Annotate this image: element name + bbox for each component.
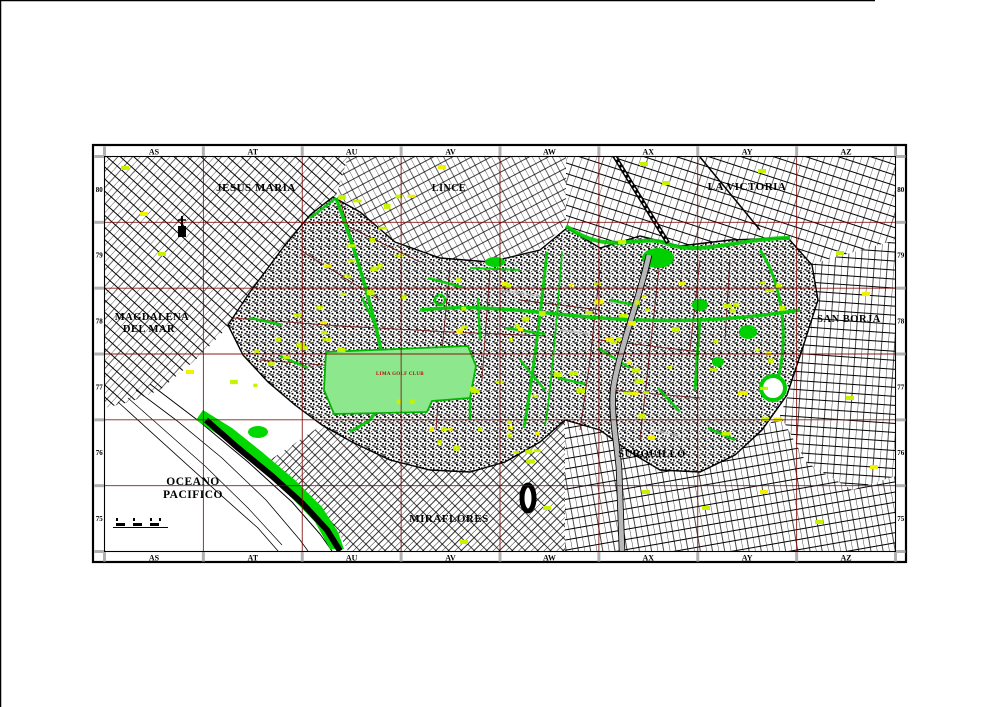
grid-row-label-right: 79 (897, 252, 905, 260)
grid-row-label-right: 76 (897, 449, 905, 457)
park-patch (453, 446, 460, 451)
park-patch (635, 379, 642, 384)
grid-row-label-left: 75 (96, 515, 104, 523)
park-patch (776, 284, 782, 289)
park-patch (616, 337, 621, 341)
park-patch (554, 372, 562, 377)
park-patch (457, 329, 463, 334)
park-patch (268, 362, 275, 365)
grid-column-label-bottom: AW (543, 554, 556, 563)
park-patch (668, 366, 672, 369)
park-patch (534, 449, 541, 452)
park-patch (525, 450, 532, 454)
district-label-oceano-line2: PACIFICO (163, 489, 223, 501)
park-patch (456, 278, 461, 282)
park-patch (710, 368, 717, 371)
grid-column-label-top: AW (543, 148, 556, 157)
park-patch (522, 317, 529, 322)
park-patch (509, 338, 513, 341)
park-patch (643, 391, 649, 394)
grid-row-label-right: 77 (897, 383, 905, 391)
park-patch (283, 356, 290, 359)
park-patch (324, 264, 332, 267)
stadium-mark (522, 485, 534, 511)
park-patch (730, 309, 736, 313)
park-patch (518, 327, 523, 331)
park-patch (768, 358, 773, 363)
park-patch (543, 506, 551, 510)
park-patch (158, 252, 166, 256)
park-patch (623, 392, 630, 395)
grid-column-label-top: AU (346, 148, 358, 157)
park-patch (535, 431, 540, 435)
park-patch (370, 267, 377, 272)
park-patch (186, 370, 194, 374)
park-patch (407, 195, 415, 198)
park-patch (679, 282, 686, 285)
park-patch (628, 321, 635, 326)
park-patch (733, 303, 738, 307)
park-patch (526, 459, 535, 463)
park-patch (230, 380, 238, 384)
park-patch (347, 244, 356, 247)
park-patch (378, 264, 383, 269)
park-patch (606, 337, 614, 342)
park-patch (396, 254, 403, 257)
park-patch (294, 313, 302, 316)
park-patch (353, 200, 362, 203)
grid-row-label-left: 77 (96, 383, 104, 391)
grid-row-label-left: 78 (96, 318, 104, 326)
park-patch (723, 304, 732, 308)
grid-row-label-left: 76 (96, 449, 104, 457)
park-patch (645, 308, 650, 312)
grid-column-label-bottom: AT (248, 554, 259, 563)
grid-row-label-right: 75 (897, 515, 905, 523)
park-patch (738, 392, 747, 395)
park-patch (323, 338, 332, 341)
park-patch (438, 165, 446, 169)
district-label-surquillo: SURQUILLO (618, 449, 686, 460)
park-patch (815, 520, 823, 524)
park-patch (760, 387, 768, 390)
park-patch (338, 195, 345, 200)
grid-column-label-top: AS (149, 148, 160, 157)
grid-column-label-bottom: AU (346, 554, 358, 563)
park-patch (846, 396, 854, 400)
grid-row-label-right: 80 (897, 186, 905, 194)
park-patch (121, 166, 129, 170)
park-patch (370, 238, 375, 242)
district-label-magdalena-line1: MAGDALENA (115, 312, 190, 323)
park-patch (619, 314, 628, 318)
park-patch (870, 465, 878, 469)
park-patch (508, 426, 513, 429)
park-patch (638, 414, 645, 419)
park-patch (765, 289, 774, 292)
grid-column-label-bottom: AV (445, 554, 456, 563)
grid-row-label-left: 79 (96, 252, 104, 260)
park-patch (569, 371, 578, 375)
park-patch (378, 227, 387, 230)
park-patch (635, 300, 640, 304)
grid-column-label-top: AT (248, 148, 259, 157)
park-patch (862, 292, 870, 296)
grid-column-label-bottom: AZ (841, 554, 852, 563)
park-patch (367, 290, 375, 295)
park-patch (448, 428, 452, 431)
park-patch (640, 162, 648, 166)
park-patch (253, 384, 257, 388)
district-label-san-borja: SAN BORJA (817, 314, 881, 325)
park-patch (140, 212, 148, 216)
district-label-oceano-line1: OCEANO (166, 476, 219, 488)
city-map-drawing: JESUS MARIALINCELA VICTORIAMAGDALENADEL … (0, 0, 1000, 707)
park-patch (758, 169, 766, 173)
district-label-magdalena-line2: DEL MAR (123, 324, 175, 335)
park-patch (317, 306, 323, 310)
park-patch (321, 331, 327, 334)
park-patch (576, 388, 585, 393)
grid-row-label-left: 80 (96, 186, 104, 194)
park-patch (642, 295, 647, 298)
park-patch (300, 346, 308, 350)
grid-column-label-bottom: AY (742, 554, 753, 563)
park-patch (569, 284, 574, 287)
grid-column-label-top: AX (643, 148, 655, 157)
park-patch (507, 421, 512, 424)
park-patch (618, 240, 626, 244)
district-label-jesus-maria: JESUS MARIA (216, 182, 296, 194)
park-patch (756, 348, 760, 351)
park-patch (429, 427, 434, 432)
park-patch (506, 284, 511, 288)
park-patch (702, 506, 710, 510)
park-patch (780, 306, 786, 311)
park-patch (397, 400, 401, 404)
park-patch (713, 340, 718, 343)
park-patch (722, 432, 731, 436)
scale-bar (113, 518, 168, 528)
park-patch (441, 427, 447, 431)
park-patch (276, 337, 282, 342)
park-patch (341, 293, 347, 296)
district-label-miraflores: MIRAFLORES (409, 513, 489, 525)
grid-column-label-bottom: AX (643, 554, 655, 563)
park-patch (648, 436, 655, 440)
park-patch (513, 451, 519, 454)
park-patch (836, 251, 844, 255)
park-patch (254, 350, 259, 353)
park-patch (384, 204, 391, 209)
park-label-lima-golf-club: LIMA GOLF CLUB (376, 372, 424, 377)
district-label-la-victoria: LA VICTORIA (708, 181, 787, 193)
park-patch (585, 311, 592, 314)
park-patch (470, 387, 476, 392)
park-patch (507, 433, 512, 438)
park-patch (662, 181, 670, 185)
park-patch (410, 400, 415, 404)
park-patch (515, 324, 520, 327)
park-patch (337, 348, 345, 353)
grid-column-label-top: AV (445, 148, 456, 157)
park-patch (642, 490, 650, 494)
park-patch (760, 490, 768, 494)
park-patch (630, 392, 638, 396)
park-patch (594, 283, 601, 286)
park-patch (539, 311, 546, 316)
park-patch (760, 281, 766, 284)
grid-column-label-top: AY (742, 148, 753, 157)
park-patch (766, 351, 771, 355)
grid-column-label-bottom: AS (149, 554, 160, 563)
park-patch (533, 395, 538, 398)
park-patch (460, 540, 468, 544)
district-label-lince: LINCE (432, 183, 466, 194)
park-patch (461, 325, 467, 328)
grid-column-label-top: AZ (841, 148, 852, 157)
park-patch (672, 327, 679, 332)
park-patch (320, 321, 327, 324)
park-patch (627, 361, 632, 365)
grid-row-label-right: 78 (897, 318, 905, 326)
park-patch (461, 307, 466, 311)
park-patch (348, 259, 355, 262)
park-patch (437, 440, 441, 445)
park-patch (344, 275, 351, 278)
park-patch (632, 368, 640, 372)
park-patch (478, 428, 482, 431)
